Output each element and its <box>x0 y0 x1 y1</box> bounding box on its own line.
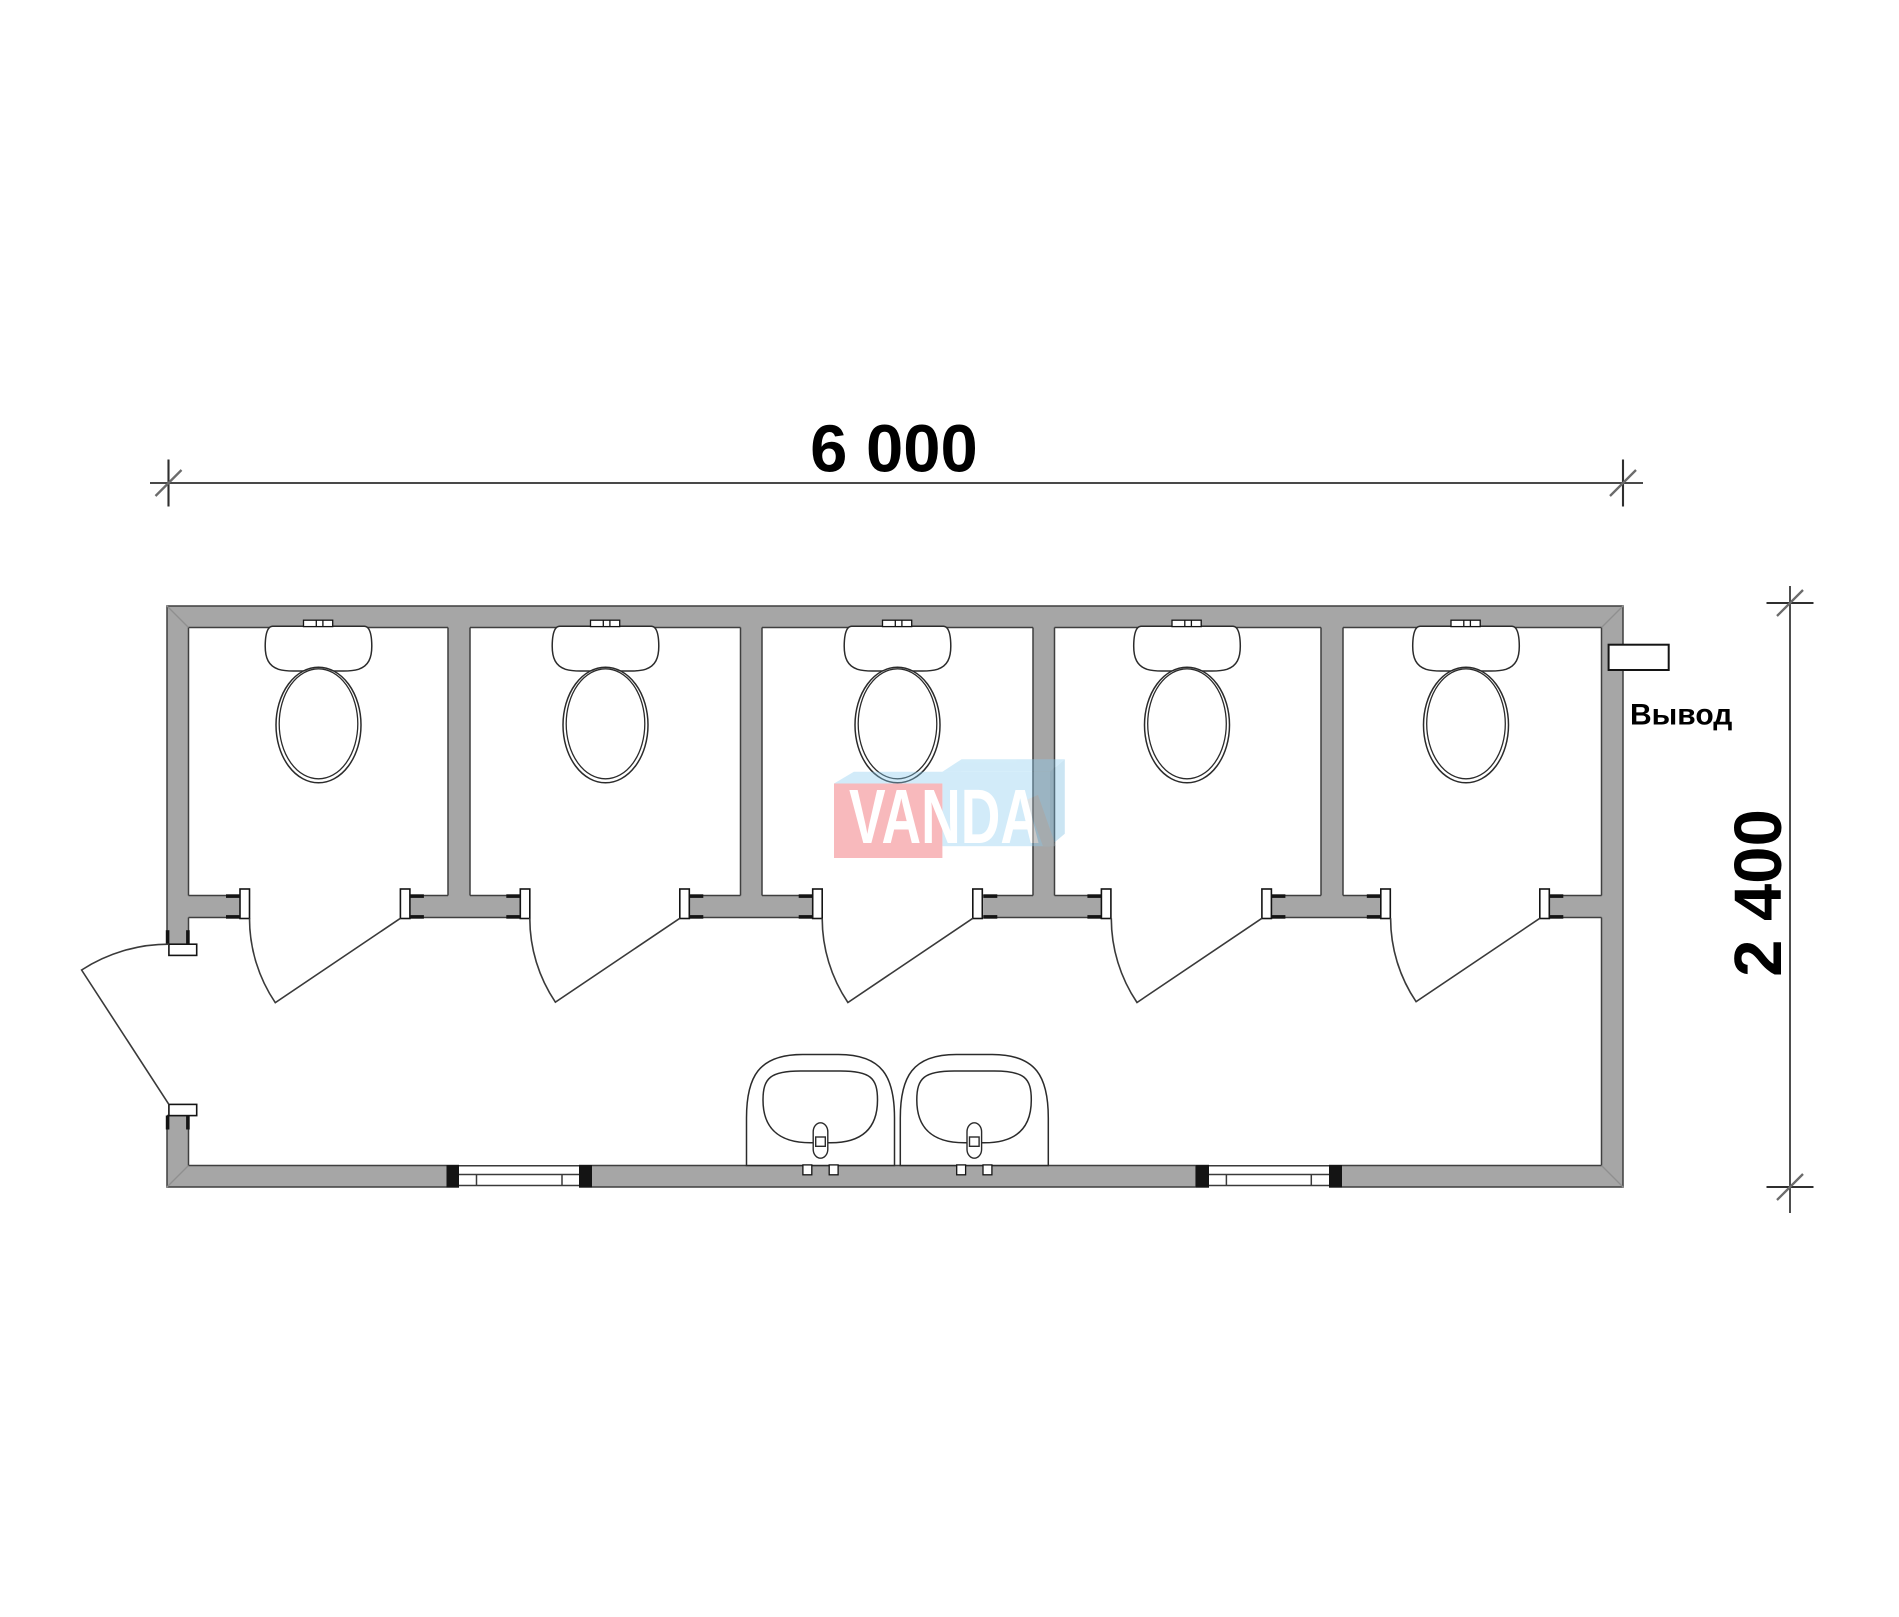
svg-text:2 400: 2 400 <box>1721 809 1796 977</box>
svg-text:6 000: 6 000 <box>810 412 978 487</box>
svg-text:VANDA: VANDA <box>849 774 1040 860</box>
svg-text:Вывод: Вывод <box>1630 699 1732 732</box>
